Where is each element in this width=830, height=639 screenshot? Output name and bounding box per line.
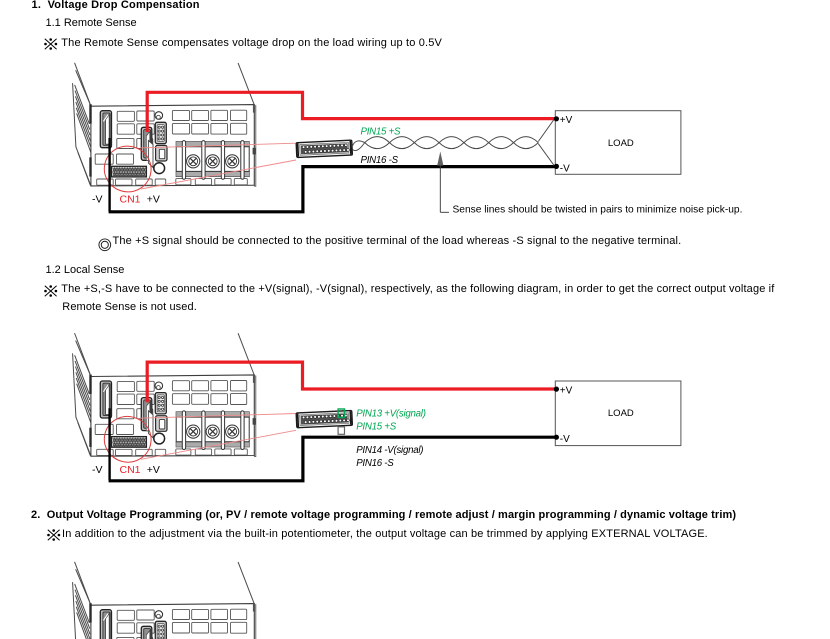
- svg-text:LOAD: LOAD: [608, 408, 634, 419]
- svg-text:PIN14 -V(signal): PIN14 -V(signal): [356, 445, 423, 456]
- svg-text:PIN13 +V(signal): PIN13 +V(signal): [356, 409, 426, 420]
- svg-text:CN1: CN1: [120, 464, 141, 476]
- svg-text:+V: +V: [560, 386, 573, 397]
- svg-text:-V: -V: [560, 163, 570, 174]
- svg-text:LOAD: LOAD: [608, 138, 634, 149]
- svg-text:+V: +V: [147, 464, 160, 476]
- svg-text:PIN15 +S: PIN15 +S: [361, 127, 402, 138]
- svg-text:-V: -V: [92, 464, 103, 476]
- svg-text:PIN15 +S: PIN15 +S: [356, 422, 397, 433]
- svg-text:-V: -V: [92, 194, 103, 206]
- svg-text:Sense lines should be twisted: Sense lines should be twisted in pairs t…: [453, 205, 743, 216]
- svg-text:PIN16 -S: PIN16 -S: [361, 155, 399, 166]
- svg-text:+V: +V: [560, 115, 573, 126]
- svg-text:PIN16 -S: PIN16 -S: [356, 458, 394, 469]
- svg-text:-V: -V: [560, 434, 570, 445]
- svg-text:CN1: CN1: [120, 194, 141, 206]
- svg-text:+V: +V: [147, 194, 160, 206]
